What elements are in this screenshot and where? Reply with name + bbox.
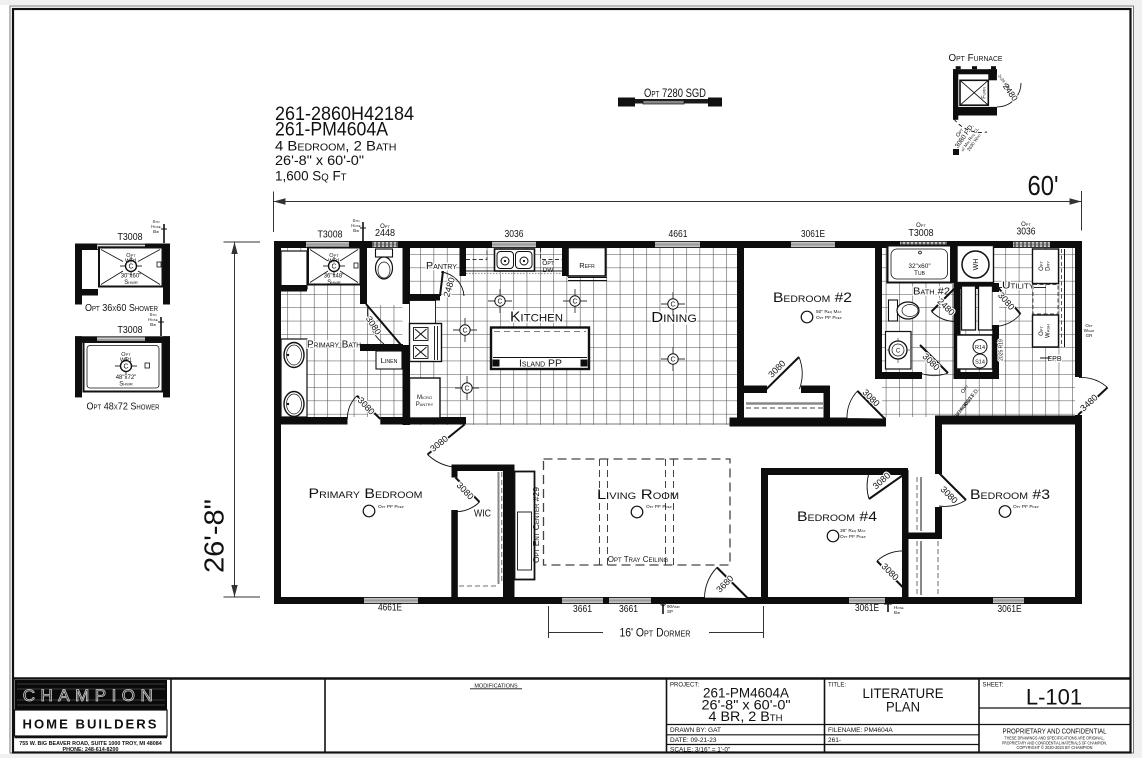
svg-text:3061E: 3061E bbox=[855, 603, 879, 614]
svg-text:Wash: Wash bbox=[1046, 324, 1052, 338]
svg-text:SHEET:: SHEET: bbox=[983, 683, 1004, 689]
svg-text:T3008: T3008 bbox=[118, 232, 143, 243]
svg-text:Micro: Micro bbox=[417, 395, 432, 401]
svg-text:3036: 3036 bbox=[505, 229, 524, 240]
svg-text:Island PP: Island PP bbox=[519, 358, 562, 370]
svg-text:Bedroom #3: Bedroom #3 bbox=[970, 487, 1050, 502]
svg-text:DW: DW bbox=[543, 267, 555, 274]
svg-text:30"x60": 30"x60" bbox=[121, 274, 142, 280]
svg-text:Pantry: Pantry bbox=[416, 402, 434, 408]
svg-text:60': 60' bbox=[1028, 170, 1059, 201]
svg-text:Dry: Dry bbox=[1046, 261, 1052, 271]
svg-text:GR: GR bbox=[1086, 333, 1094, 338]
svg-text:C: C bbox=[497, 299, 502, 306]
svg-text:Tub: Tub bbox=[914, 270, 926, 277]
svg-text:Kitchen: Kitchen bbox=[510, 309, 563, 326]
svg-text:36" Req Max: 36" Req Max bbox=[840, 528, 866, 534]
svg-text:Living Room: Living Room bbox=[597, 487, 679, 502]
svg-text:WP1: WP1 bbox=[125, 259, 137, 265]
svg-text:4661E: 4661E bbox=[378, 603, 402, 614]
svg-text:S14: S14 bbox=[975, 360, 985, 366]
svg-text:Bib: Bib bbox=[353, 228, 359, 233]
svg-text:Opt 36x60 Shower: Opt 36x60 Shower bbox=[85, 302, 158, 314]
svg-text:Shwr: Shwr bbox=[327, 280, 341, 286]
svg-text:Opt Ent Center #29: Opt Ent Center #29 bbox=[531, 487, 541, 563]
svg-text:R14: R14 bbox=[975, 345, 985, 351]
svg-text:26'-8" x 60'-0": 26'-8" x 60'-0" bbox=[275, 152, 364, 168]
svg-text:COPYRIGHT © 2020-2024 BY CHAMP: COPYRIGHT © 2020-2024 BY CHAMPION bbox=[1017, 745, 1093, 750]
svg-text:Bedroom #4: Bedroom #4 bbox=[797, 509, 878, 524]
svg-text:T3008: T3008 bbox=[118, 325, 143, 336]
svg-text:32"x60": 32"x60" bbox=[908, 263, 931, 270]
svg-text:Linen: Linen bbox=[381, 356, 398, 365]
svg-text:Bedroom #2: Bedroom #2 bbox=[773, 290, 852, 305]
svg-text:Opt PF Prep: Opt PF Prep bbox=[840, 534, 866, 540]
svg-text:HOME BUILDERS: HOME BUILDERS bbox=[23, 717, 159, 732]
svg-text:CHAMPION: CHAMPION bbox=[23, 686, 159, 705]
svg-text:3061E: 3061E bbox=[998, 604, 1022, 615]
svg-text:36"x48": 36"x48" bbox=[324, 274, 345, 280]
svg-text:L-101: L-101 bbox=[1026, 685, 1082, 710]
svg-text:3661: 3661 bbox=[573, 604, 592, 615]
svg-text:4661: 4661 bbox=[669, 229, 688, 240]
svg-text:26'-8": 26'-8" bbox=[199, 499, 230, 573]
svg-text:Opt PF Prep: Opt PF Prep bbox=[1013, 504, 1039, 510]
svg-text:Dining: Dining bbox=[651, 309, 697, 326]
svg-text:Shwr: Shwr bbox=[124, 280, 138, 286]
svg-text:SP: SP bbox=[667, 609, 673, 614]
svg-text:Refr: Refr bbox=[579, 261, 595, 270]
svg-text:Primary Bedroom: Primary Bedroom bbox=[309, 486, 423, 501]
svg-text:Shwr: Shwr bbox=[119, 382, 133, 388]
svg-text:C: C bbox=[572, 299, 577, 306]
svg-text:Bib: Bib bbox=[150, 322, 156, 327]
svg-text:16' Opt Dormer: 16' Opt Dormer bbox=[620, 628, 691, 640]
svg-text:WIC: WIC bbox=[474, 509, 491, 520]
svg-text:Opt PF Prep: Opt PF Prep bbox=[816, 315, 842, 321]
svg-text:C: C bbox=[670, 357, 675, 364]
svg-text:Opt Furnace: Opt Furnace bbox=[949, 53, 1003, 64]
svg-text:Opt PF Prep: Opt PF Prep bbox=[646, 504, 672, 510]
svg-text:C: C bbox=[464, 386, 469, 393]
svg-text:48"x72": 48"x72" bbox=[116, 375, 137, 381]
svg-text:C: C bbox=[670, 302, 675, 309]
svg-text:Bib: Bib bbox=[894, 610, 900, 615]
svg-text:WP1: WP1 bbox=[120, 358, 132, 364]
svg-text:Opt: Opt bbox=[1039, 326, 1045, 336]
svg-text:2025 R19: 2025 R19 bbox=[999, 339, 1005, 361]
svg-text:TITLE:: TITLE: bbox=[828, 683, 846, 689]
svg-text:EPB: EPB bbox=[1047, 356, 1061, 363]
svg-text:Furn: Furn bbox=[982, 87, 988, 99]
svg-text:Opt PF Prep: Opt PF Prep bbox=[378, 504, 404, 510]
svg-text:50" Req Max: 50" Req Max bbox=[816, 309, 842, 315]
svg-text:WP1: WP1 bbox=[328, 259, 340, 265]
svg-text:2448: 2448 bbox=[375, 228, 395, 239]
svg-text:C: C bbox=[123, 363, 128, 370]
svg-text:SCALE: 3/16" = 1'-0": SCALE: 3/16" = 1'-0" bbox=[670, 747, 731, 754]
svg-text:Primary Bath: Primary Bath bbox=[307, 339, 361, 351]
svg-text:T3008: T3008 bbox=[318, 230, 343, 241]
svg-text:Opt Tray Ceiling: Opt Tray Ceiling bbox=[608, 555, 669, 564]
svg-text:Utility: Utility bbox=[1002, 280, 1034, 292]
svg-text:T3008: T3008 bbox=[909, 228, 934, 239]
svg-text:3061E: 3061E bbox=[801, 229, 825, 240]
svg-text:261-: 261- bbox=[828, 737, 841, 744]
svg-text:PHONE: 248-614-8200: PHONE: 248-614-8200 bbox=[62, 747, 118, 753]
svg-text:DATE: 09-21-23: DATE: 09-21-23 bbox=[670, 737, 717, 744]
svg-text:Opt: Opt bbox=[542, 260, 553, 267]
svg-text:Opt: Opt bbox=[1039, 261, 1045, 271]
svg-text:C: C bbox=[462, 328, 467, 335]
svg-text:3036: 3036 bbox=[1017, 227, 1036, 238]
svg-text:Opt 48x72 Shower: Opt 48x72 Shower bbox=[87, 401, 160, 413]
svg-text:FILENAME: PM4604A: FILENAME: PM4604A bbox=[828, 727, 893, 734]
svg-text:4 BR, 2 Bth: 4 BR, 2 Bth bbox=[709, 709, 783, 724]
svg-text:Bath #2: Bath #2 bbox=[913, 286, 950, 298]
svg-text:3661: 3661 bbox=[619, 604, 638, 615]
svg-text:Opt 7280 SGD: Opt 7280 SGD bbox=[644, 86, 706, 100]
svg-text:C: C bbox=[896, 349, 901, 355]
svg-text:WH: WH bbox=[973, 259, 980, 271]
svg-text:Pantry: Pantry bbox=[426, 260, 457, 272]
svg-text:Bib: Bib bbox=[153, 229, 159, 234]
svg-text:PLAN: PLAN bbox=[886, 699, 920, 715]
svg-text:1,600 Sq Ft: 1,600 Sq Ft bbox=[275, 168, 347, 184]
svg-text:PROPRIETARY AND CONFIDENTIAL: PROPRIETARY AND CONFIDENTIAL bbox=[1003, 729, 1107, 736]
svg-text:DRAWN BY: GAT: DRAWN BY: GAT bbox=[670, 727, 721, 734]
svg-text:PROJECT:: PROJECT: bbox=[670, 683, 699, 689]
